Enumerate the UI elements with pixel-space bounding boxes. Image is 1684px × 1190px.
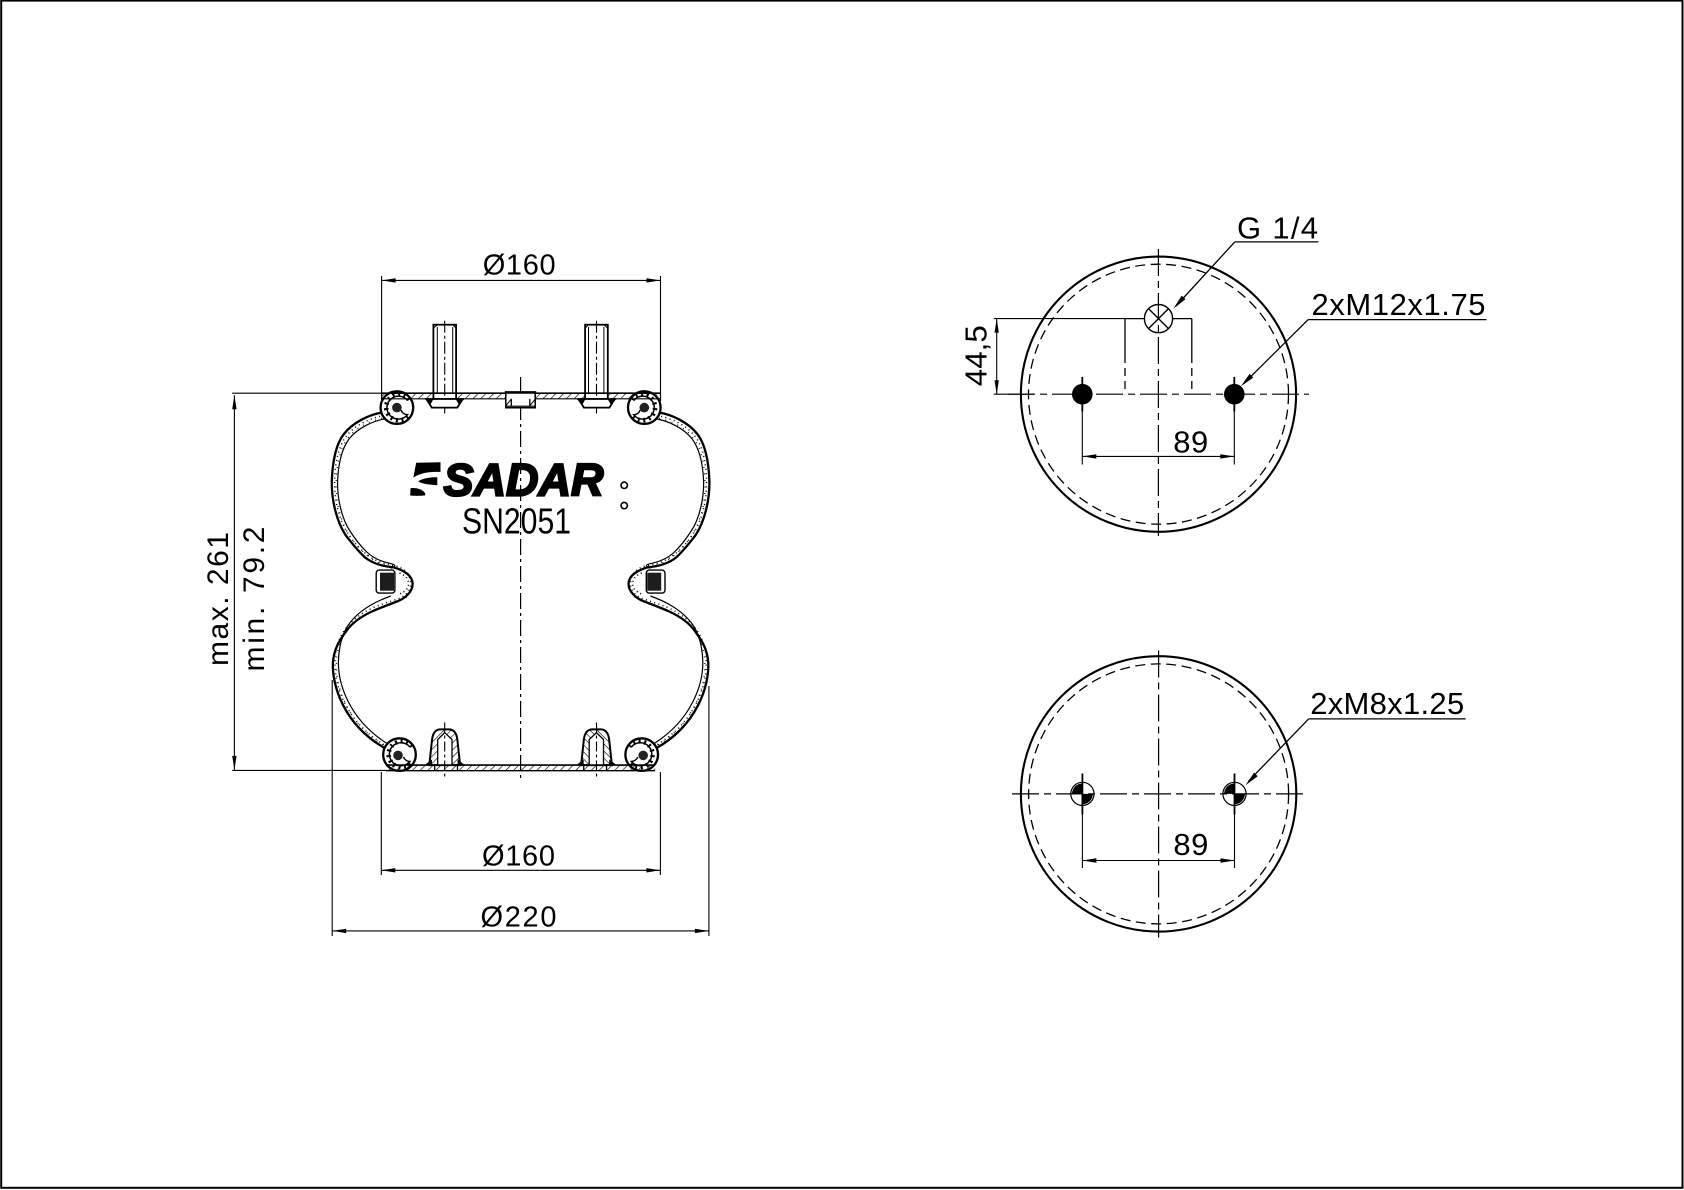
svg-text:SADAR: SADAR [444, 455, 605, 506]
svg-text:G 1/4: G 1/4 [1237, 211, 1318, 246]
svg-text:2xM12x1.75: 2xM12x1.75 [1312, 287, 1486, 322]
svg-text:2xM8x1.25: 2xM8x1.25 [1310, 686, 1464, 721]
svg-text:Ø160: Ø160 [483, 250, 556, 282]
svg-text:Ø220: Ø220 [481, 902, 557, 934]
svg-text:89: 89 [1173, 827, 1208, 862]
svg-text:min. 79.2: min. 79.2 [238, 527, 271, 672]
svg-text:44,5: 44,5 [958, 325, 993, 386]
svg-text:SN2051: SN2051 [462, 501, 571, 542]
svg-text:Ø160: Ø160 [482, 840, 555, 872]
svg-text:max. 261: max. 261 [202, 532, 235, 666]
svg-text:89: 89 [1173, 424, 1208, 459]
